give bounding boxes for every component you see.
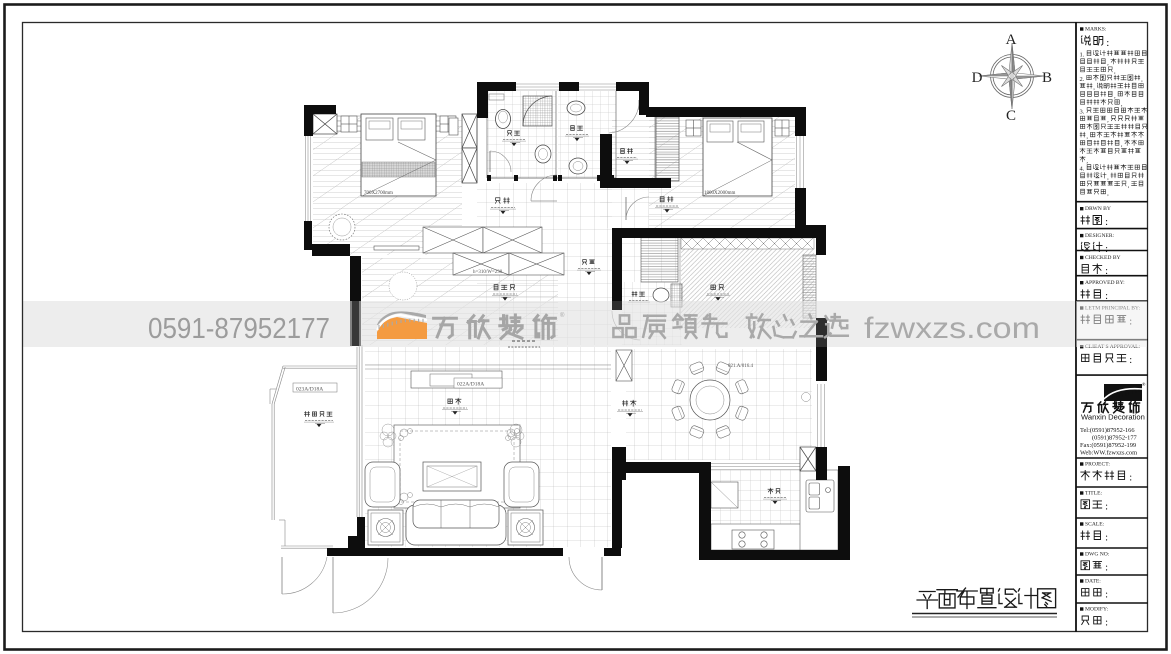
- svg-text::: :: [1129, 473, 1132, 484]
- svg-text:D: D: [972, 70, 983, 86]
- svg-text:0591-87952177: 0591-87952177: [148, 313, 330, 345]
- svg-text:®: ®: [560, 312, 565, 319]
- svg-text:DESIGNER:: DESIGNER:: [1085, 233, 1115, 239]
- svg-text:(0591)87952-177: (0591)87952-177: [1092, 435, 1138, 442]
- svg-text:1800X2000mm: 1800X2000mm: [704, 191, 736, 196]
- svg-text:Web:WW.fzwxzs.com: Web:WW.fzwxzs.com: [1080, 450, 1137, 457]
- svg-text::: :: [1105, 533, 1108, 544]
- svg-text:B: B: [1042, 70, 1052, 86]
- svg-text::: :: [1105, 502, 1108, 513]
- svg-text:022A/D18A: 022A/D18A: [457, 382, 484, 388]
- svg-text::: :: [1105, 618, 1108, 629]
- svg-text:Fax:(0591)87952-199: Fax:(0591)87952-199: [1080, 442, 1136, 449]
- svg-text:PROJECT:: PROJECT:: [1085, 462, 1110, 468]
- svg-text:fzwxzs.com: fzwxzs.com: [864, 312, 1040, 345]
- svg-text:023A/D18A: 023A/D18A: [296, 387, 323, 393]
- svg-text:SCALE:: SCALE:: [1085, 522, 1105, 528]
- svg-text:MODIFY:: MODIFY:: [1085, 607, 1109, 613]
- svg-text:DATE:: DATE:: [1085, 579, 1101, 585]
- svg-text:CHECKED BY: CHECKED BY: [1085, 255, 1121, 261]
- svg-text::: :: [1105, 266, 1108, 277]
- svg-text:700X2700mm: 700X2700mm: [364, 191, 393, 196]
- svg-text:DWG NO:: DWG NO:: [1085, 552, 1110, 558]
- svg-text:C: C: [1006, 108, 1016, 124]
- svg-text:Wanxin Decoration: Wanxin Decoration: [1081, 413, 1145, 422]
- svg-text::: :: [1106, 37, 1109, 49]
- svg-text:TITLE:: TITLE:: [1085, 491, 1103, 497]
- svg-text:DRWN BY: DRWN BY: [1085, 206, 1111, 212]
- svg-text:Tel:(0591)87952-166: Tel:(0591)87952-166: [1080, 427, 1135, 434]
- svg-text::: :: [1105, 291, 1108, 302]
- svg-text::: :: [1105, 590, 1108, 601]
- svg-text::: :: [1129, 355, 1132, 366]
- svg-text:h=310/W=230: h=310/W=230: [473, 270, 503, 275]
- svg-text:MARKS:: MARKS:: [1085, 27, 1107, 33]
- svg-text:A: A: [1006, 32, 1017, 48]
- svg-text::: :: [1105, 244, 1108, 255]
- svg-text::: :: [1105, 563, 1108, 574]
- svg-text:APPROVED BY:: APPROVED BY:: [1085, 280, 1125, 286]
- svg-text:021.A/016.4: 021.A/016.4: [728, 364, 754, 369]
- svg-text::: :: [1105, 217, 1108, 228]
